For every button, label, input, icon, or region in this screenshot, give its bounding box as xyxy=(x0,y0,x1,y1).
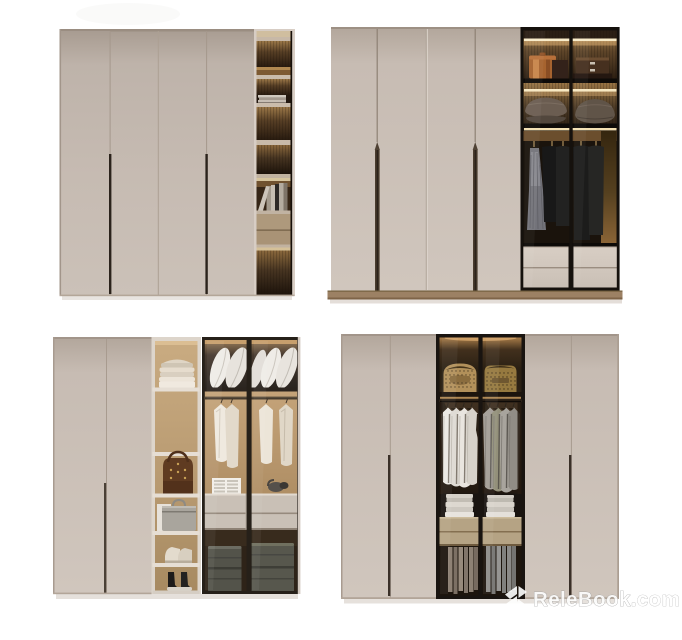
svg-text:ReleBook.com: ReleBook.com xyxy=(533,588,680,611)
